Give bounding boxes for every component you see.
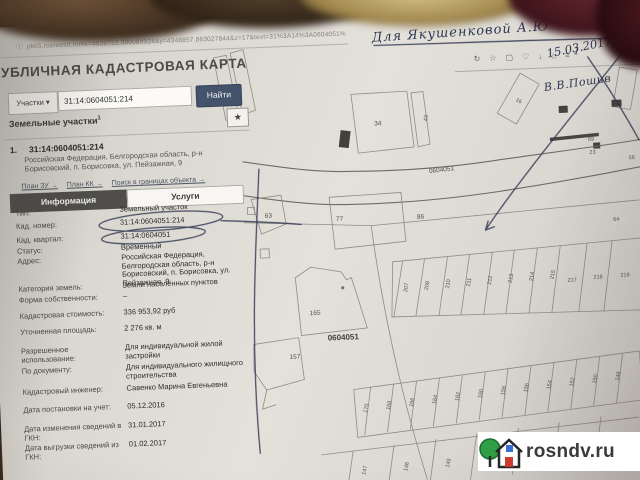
svg-text:219: 219: [620, 272, 629, 278]
svg-text:218: 218: [593, 274, 602, 280]
handwritten-mark: 1: [573, 46, 580, 58]
pen-line-2: [588, 55, 639, 142]
url-text: pkk5.rosreestr.ru/#x=4039722.000089924&y…: [27, 29, 346, 51]
map-labels: 34 43 16 63 77 86 165 157 69 23 56 64 06…: [260, 93, 640, 480]
svg-text:157: 157: [289, 354, 301, 361]
field-value: 31:14:0604051:214: [116, 214, 248, 228]
search-in-bounds-link: Поиск в границах объекта →: [112, 176, 206, 187]
download-icon: ↓: [538, 52, 542, 64]
svg-text:154: 154: [546, 380, 554, 390]
field-label: Кадастровая стоимость:: [19, 309, 119, 322]
field-label: Дата выгрузки сведений из ГКН:: [25, 441, 126, 462]
panel-header-sup: 1: [97, 115, 101, 121]
svg-text:56: 56: [629, 155, 635, 161]
svg-text:217: 217: [567, 277, 576, 283]
field-label: Адрес:: [17, 254, 117, 267]
result-index: 1.: [10, 145, 17, 155]
svg-text:148: 148: [615, 371, 623, 381]
field-value: Для индивидуального жилищного строительс…: [122, 358, 255, 380]
field-value: –: [119, 288, 251, 302]
field-label: Уточненная площадь:: [20, 325, 120, 338]
svg-text:146: 146: [403, 462, 411, 472]
favorite-star-button: ★: [226, 107, 249, 127]
svg-text:207: 207: [403, 283, 410, 293]
handwritten-recipient: Для Якушенковой А.Ю: [371, 19, 550, 46]
svg-text:160: 160: [477, 389, 485, 399]
svg-text:162: 162: [454, 391, 462, 401]
field-value: Савенко Марина Евгеньевна: [122, 379, 254, 393]
field-value: 05.12.2016: [123, 397, 255, 411]
svg-text:214: 214: [529, 271, 536, 281]
search-input: 31:14:0604051:214: [58, 86, 193, 111]
window-icon: [506, 445, 513, 452]
door-icon: [505, 457, 513, 467]
svg-text:213: 213: [508, 273, 515, 283]
svg-text:158: 158: [500, 386, 508, 396]
svg-text:0604051: 0604051: [328, 332, 360, 342]
photo-of-printed-cadastral-page: 34 43 16 63 77 86 165 157 69 23 56 64 06…: [0, 0, 640, 480]
field-label: Форма собственности:: [19, 293, 119, 306]
field-row: Уточненная площадь:2 276 кв. м: [20, 320, 252, 338]
reload-icon: ↻: [473, 54, 480, 66]
watermark-text: rosndv.ru: [526, 441, 615, 463]
svg-text:164: 164: [432, 394, 440, 404]
extension-icon: ▢: [505, 53, 513, 65]
page-title: ПУБЛИЧНАЯ КАДАСТРОВАЯ КАРТА: [0, 53, 321, 81]
field-value: 31.01.2017: [124, 416, 256, 430]
plan-zu-link: План ЗУ →: [21, 182, 58, 190]
panel-header-title: Земельные участки: [9, 116, 98, 130]
field-label: Разрешенное использование:: [21, 344, 122, 365]
svg-text:145: 145: [445, 458, 453, 468]
svg-text:63: 63: [265, 213, 273, 220]
svg-text:215: 215: [550, 270, 557, 280]
svg-text:0604051: 0604051: [429, 165, 455, 175]
map-dark-structures: [337, 100, 623, 159]
svg-text:23: 23: [589, 150, 595, 156]
field-label: Кадастровый инженер:: [23, 385, 123, 398]
field-label: Кад. номер:: [16, 219, 116, 232]
svg-text:168: 168: [386, 400, 394, 410]
svg-text:211: 211: [466, 277, 473, 287]
svg-text:210: 210: [445, 279, 452, 289]
map-road: [242, 133, 640, 209]
svg-text:166: 166: [409, 397, 417, 407]
svg-text:156: 156: [523, 383, 531, 393]
svg-text:150: 150: [592, 374, 600, 384]
plan-kk-link: План КК →: [67, 180, 103, 188]
svg-text:43: 43: [423, 115, 430, 122]
svg-text:69: 69: [588, 137, 594, 143]
svg-text:16: 16: [514, 97, 522, 105]
info-icon: ⓘ: [16, 43, 23, 50]
svg-text:147: 147: [361, 465, 369, 475]
pen-arrowhead: [485, 221, 494, 230]
field-value: 336 953,92 руб: [119, 304, 251, 318]
svg-text:34: 34: [374, 120, 382, 127]
heart-icon: ♡: [522, 52, 530, 64]
field-row: Дата постановки на учет:05.12.2016: [23, 397, 255, 415]
svg-text:152: 152: [569, 377, 577, 387]
watermark-house-tree-logo: [478, 432, 526, 471]
handwritten-signature: В.В.Пошив: [543, 71, 612, 94]
svg-text:64: 64: [613, 217, 619, 223]
field-value: 2 276 кв. м: [120, 320, 252, 334]
svg-text:170: 170: [363, 403, 371, 413]
star-icon: ☆: [489, 54, 497, 66]
svg-text:212: 212: [487, 275, 494, 285]
find-button: Найти: [195, 84, 242, 108]
field-row: Кадастровая стоимость:336 953,92 руб: [19, 304, 251, 322]
printed-page: 34 43 16 63 77 86 165 157 69 23 56 64 06…: [0, 0, 640, 480]
field-label: Дата постановки на учет:: [23, 403, 123, 416]
svg-text:86: 86: [417, 214, 425, 221]
svg-text:77: 77: [336, 216, 344, 223]
search-category-dropdown: Участки ▾: [8, 91, 59, 115]
svg-text:165: 165: [310, 310, 322, 317]
svg-text:208: 208: [424, 281, 431, 291]
field-label: По документу:: [22, 364, 122, 377]
watermark: rosndv.ru: [478, 432, 640, 471]
